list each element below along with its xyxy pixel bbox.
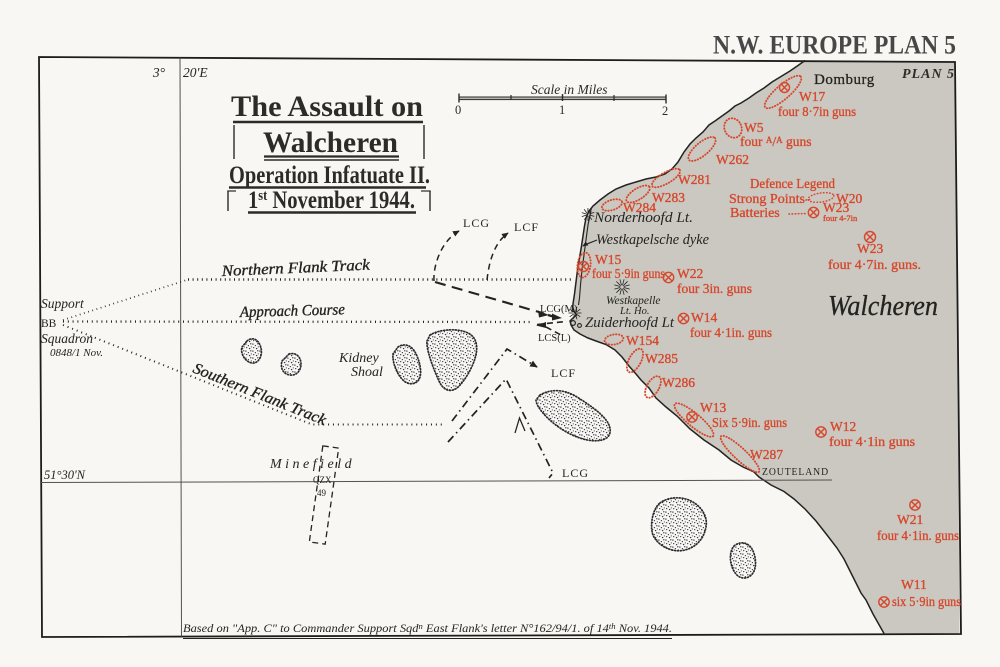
- svg-text:four 4-7in: four 4-7in: [823, 213, 858, 223]
- svg-text:Based on "App. C" to Commander: Based on "App. C" to Commander Support S…: [183, 622, 672, 635]
- svg-text:BB: BB: [41, 318, 57, 330]
- svg-text:W5: W5: [744, 120, 764, 135]
- svg-text:20'E: 20'E: [183, 65, 208, 80]
- svg-text:four 4·7in. guns.: four 4·7in. guns.: [828, 257, 921, 272]
- svg-text:Defence Legend: Defence Legend: [750, 177, 835, 192]
- svg-text:51°30'N: 51°30'N: [44, 468, 86, 482]
- svg-text:W22: W22: [677, 266, 703, 281]
- svg-text:Squadron: Squadron: [41, 331, 93, 346]
- svg-text:3°: 3°: [152, 65, 166, 80]
- svg-text:Six 5·9in. guns: Six 5·9in. guns: [712, 415, 787, 430]
- svg-text:Shoal: Shoal: [351, 365, 383, 380]
- svg-text:four A/A guns: four A/A guns: [740, 134, 812, 149]
- svg-text:W285: W285: [645, 351, 678, 366]
- svg-text:LCS(L): LCS(L): [538, 333, 571, 344]
- svg-text:four 4·1in. guns: four 4·1in. guns: [877, 528, 959, 543]
- svg-text:0: 0: [455, 103, 461, 117]
- svg-text:W281: W281: [678, 172, 711, 187]
- svg-text:Scale in Miles: Scale in Miles: [531, 82, 607, 97]
- svg-text:W154: W154: [626, 333, 659, 348]
- svg-text:1st November 1944.: 1st November 1944.: [248, 187, 415, 214]
- svg-text:four 8·7in guns: four 8·7in guns: [778, 104, 856, 119]
- svg-text:Walcheren: Walcheren: [828, 291, 938, 322]
- svg-text:W15: W15: [595, 252, 621, 267]
- svg-text:four 4·1in. guns: four 4·1in. guns: [690, 325, 772, 340]
- svg-text:Batteries: Batteries: [730, 206, 780, 221]
- svg-text:Approach Course: Approach Course: [239, 301, 345, 321]
- svg-text:LCF: LCF: [551, 366, 576, 380]
- svg-text:The Assault on: The Assault on: [231, 90, 423, 123]
- svg-text:2: 2: [662, 104, 668, 118]
- svg-text:LCG: LCG: [562, 466, 589, 480]
- svg-text:PLAN 5: PLAN 5: [902, 67, 955, 82]
- svg-text:W13: W13: [700, 400, 726, 415]
- svg-text:ZOUTELAND: ZOUTELAND: [762, 467, 829, 478]
- svg-text:Zuiderhoofd Lt: Zuiderhoofd Lt: [585, 315, 675, 331]
- svg-text:0848/1 Nov.: 0848/1 Nov.: [50, 347, 103, 359]
- svg-text:W12: W12: [830, 419, 856, 434]
- svg-text:W23: W23: [857, 241, 883, 256]
- svg-text:49: 49: [317, 488, 327, 498]
- svg-text:W21: W21: [897, 512, 923, 527]
- svg-text:1: 1: [559, 103, 565, 117]
- svg-text:QZX: QZX: [313, 475, 332, 485]
- svg-text:Westkapelsche dyke: Westkapelsche dyke: [596, 232, 710, 248]
- svg-text:LCF: LCF: [514, 220, 539, 234]
- svg-text:Kidney: Kidney: [338, 351, 379, 366]
- svg-text:W286: W286: [662, 375, 695, 390]
- svg-text:Support: Support: [41, 296, 85, 311]
- svg-text:N.W. EUROPE PLAN 5: N.W. EUROPE PLAN 5: [713, 30, 956, 60]
- svg-text:Operation Infatuate II.: Operation Infatuate II.: [229, 162, 430, 189]
- svg-text:W17: W17: [799, 89, 825, 104]
- svg-text:six 5·9in guns: six 5·9in guns: [892, 594, 961, 609]
- svg-text:four 3in. guns: four 3in. guns: [677, 281, 752, 296]
- svg-text:Walcheren: Walcheren: [263, 126, 398, 159]
- svg-text:LCG: LCG: [463, 216, 490, 230]
- svg-text:W14: W14: [691, 310, 717, 325]
- svg-text:Strong Points: Strong Points: [729, 192, 805, 207]
- svg-text:four 4·1in guns: four 4·1in guns: [829, 434, 915, 449]
- svg-text:four 5·9in guns: four 5·9in guns: [592, 266, 665, 281]
- svg-text:Minefield: Minefield: [269, 457, 355, 472]
- svg-text:W262: W262: [716, 152, 749, 167]
- svg-text:Domburg: Domburg: [814, 72, 875, 88]
- svg-text:W11: W11: [901, 577, 927, 592]
- svg-text:W283: W283: [652, 190, 685, 205]
- svg-text:W284: W284: [623, 200, 656, 215]
- svg-text:W287: W287: [750, 447, 783, 462]
